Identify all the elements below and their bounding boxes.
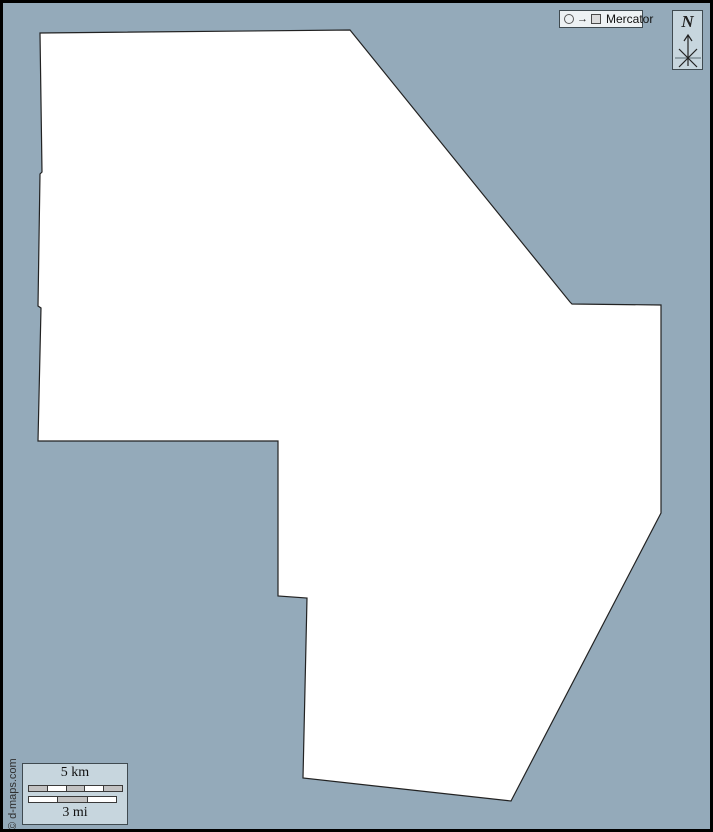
scale-segment [87, 797, 116, 802]
km-scale-bar [28, 785, 123, 792]
scale-segment [66, 786, 85, 791]
scale-segment [103, 786, 122, 791]
scale-bar-panel: 5 km 3 mi [22, 763, 128, 825]
map-canvas: → Mercator N 5 km 3 mi © d-maps.com [0, 0, 713, 832]
compass-needle-icon [675, 32, 701, 68]
projected-plane-icon [591, 14, 601, 24]
scale-segment [57, 797, 86, 802]
copyright-text: © d-maps.com [7, 758, 19, 830]
compass-rose: N [672, 10, 703, 70]
projection-label: Mercator [604, 11, 653, 27]
map-svg [0, 0, 713, 832]
scale-segment [29, 786, 47, 791]
scale-segment [84, 786, 103, 791]
globe-sphere-icon [564, 14, 574, 24]
territory-outline [38, 30, 661, 801]
north-label: N [681, 12, 693, 32]
projection-arrow-icon: → [577, 14, 588, 24]
projection-badge: → Mercator [559, 10, 643, 28]
scale-mi-label: 3 mi [23, 805, 127, 821]
scale-km-label: 5 km [23, 765, 127, 781]
mi-scale-bar [28, 796, 117, 803]
scale-segment [47, 786, 66, 791]
scale-segment [29, 797, 57, 802]
